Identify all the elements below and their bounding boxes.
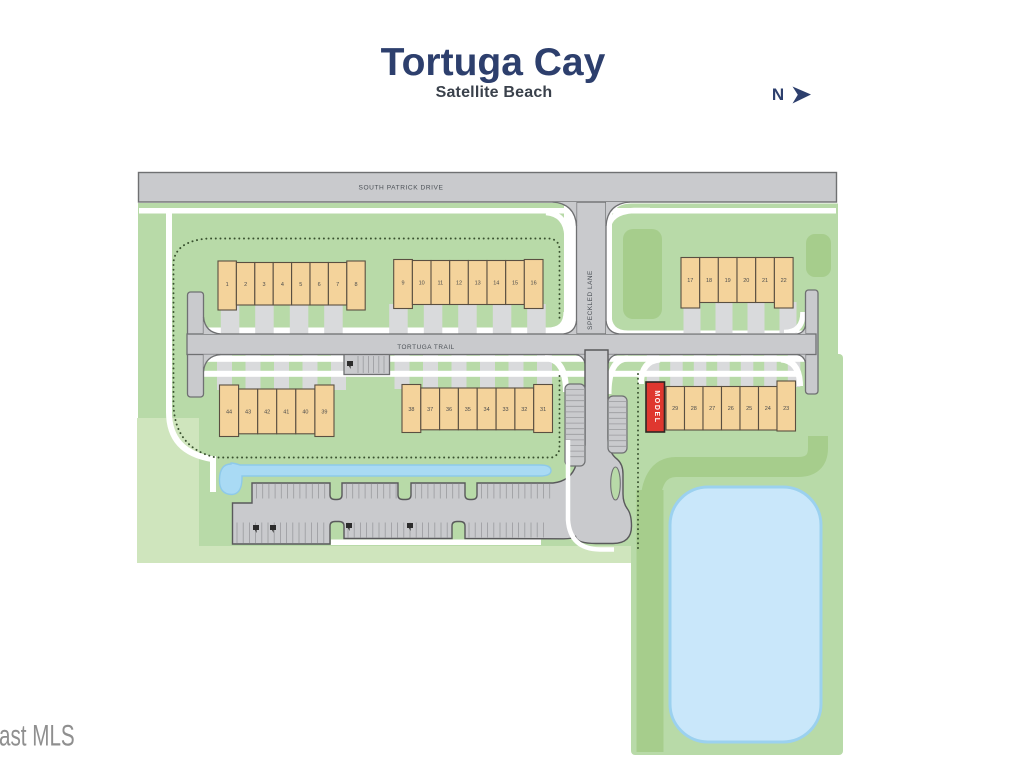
svg-text:32: 32 (521, 407, 527, 413)
svg-text:34: 34 (484, 407, 490, 413)
svg-text:21: 21 (762, 278, 768, 284)
svg-text:38: 38 (408, 407, 414, 413)
svg-text:23: 23 (783, 406, 789, 412)
svg-text:35: 35 (465, 407, 471, 413)
svg-text:16: 16 (531, 281, 537, 287)
svg-text:10: 10 (419, 281, 425, 287)
svg-text:37: 37 (427, 407, 433, 413)
svg-text:24: 24 (765, 406, 771, 412)
svg-text:TORTUGA TRAIL: TORTUGA TRAIL (397, 344, 455, 351)
svg-text:Tortuga Cay: Tortuga Cay (381, 41, 606, 84)
svg-text:8: 8 (354, 282, 357, 288)
svg-text:42: 42 (264, 409, 270, 415)
svg-text:13: 13 (475, 281, 481, 287)
svg-text:15: 15 (512, 281, 518, 287)
svg-text:44: 44 (226, 409, 232, 415)
svg-text:east MLS: east MLS (0, 720, 75, 752)
svg-text:25: 25 (746, 406, 752, 412)
svg-text:11: 11 (437, 281, 443, 287)
svg-text:MODEL: MODEL (653, 390, 660, 423)
svg-text:SOUTH PATRICK DRIVE: SOUTH PATRICK DRIVE (359, 185, 444, 192)
svg-text:26: 26 (728, 406, 734, 412)
svg-text:2: 2 (244, 282, 247, 288)
svg-text:N: N (772, 85, 784, 104)
svg-text:20: 20 (743, 278, 749, 284)
svg-text:3: 3 (262, 282, 265, 288)
svg-text:18: 18 (706, 278, 712, 284)
svg-text:33: 33 (502, 407, 508, 413)
svg-text:Satellite Beach: Satellite Beach (436, 84, 553, 101)
svg-text:17: 17 (687, 278, 693, 284)
svg-text:40: 40 (302, 409, 308, 415)
svg-text:43: 43 (245, 409, 251, 415)
svg-text:27: 27 (709, 406, 715, 412)
svg-text:22: 22 (781, 278, 787, 284)
svg-text:14: 14 (493, 281, 499, 287)
svg-text:41: 41 (283, 409, 289, 415)
svg-text:36: 36 (446, 407, 452, 413)
svg-text:19: 19 (725, 278, 731, 284)
svg-text:7: 7 (336, 282, 339, 288)
svg-text:12: 12 (456, 281, 462, 287)
svg-text:31: 31 (540, 407, 546, 413)
svg-text:5: 5 (299, 282, 302, 288)
svg-text:1: 1 (226, 282, 229, 288)
svg-text:28: 28 (691, 406, 697, 412)
svg-text:39: 39 (321, 409, 327, 415)
svg-text:6: 6 (318, 282, 321, 288)
svg-text:4: 4 (281, 282, 284, 288)
svg-text:SPECKLED LANE: SPECKLED LANE (587, 270, 594, 330)
svg-text:29: 29 (672, 406, 678, 412)
svg-text:9: 9 (401, 281, 404, 287)
